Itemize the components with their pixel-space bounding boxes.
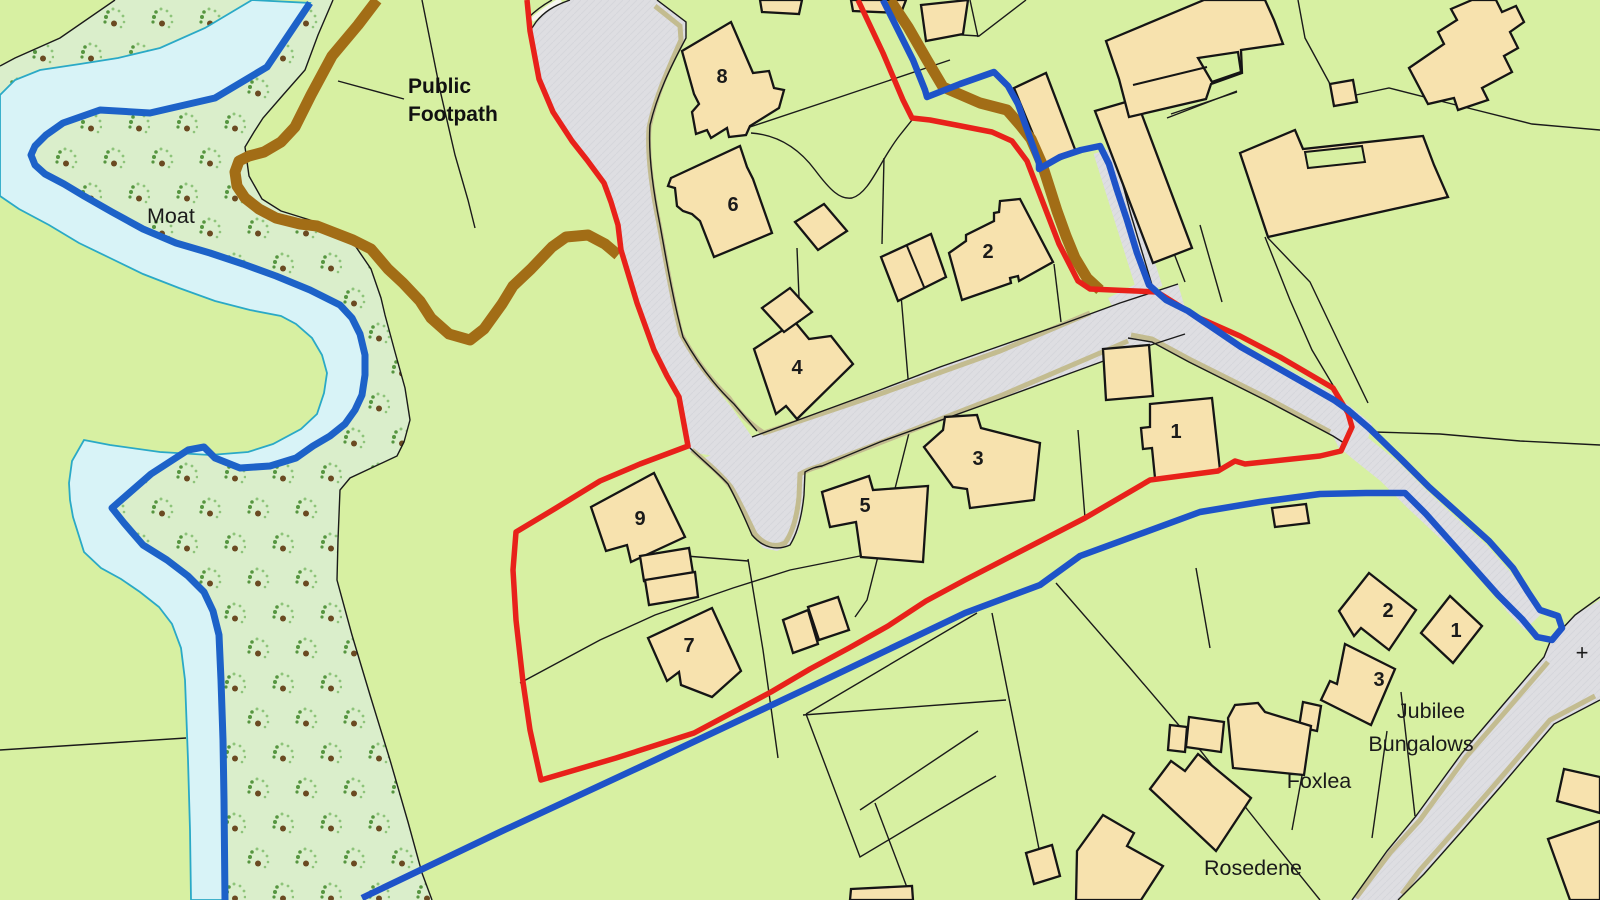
svg-text:Foxlea: Foxlea <box>1287 769 1352 793</box>
svg-text:Public: Public <box>408 75 471 98</box>
svg-text:4: 4 <box>791 357 803 379</box>
svg-text:1: 1 <box>1450 620 1461 642</box>
svg-text:7: 7 <box>683 635 694 657</box>
svg-text:3: 3 <box>972 448 983 470</box>
svg-text:2: 2 <box>1382 600 1393 622</box>
svg-text:1: 1 <box>1170 421 1181 443</box>
svg-text:+: + <box>1576 640 1589 665</box>
svg-text:3: 3 <box>1373 669 1384 691</box>
svg-text:8: 8 <box>716 66 727 88</box>
svg-text:Bungalows: Bungalows <box>1368 732 1473 756</box>
svg-text:Rosedene: Rosedene <box>1204 856 1302 880</box>
svg-text:5: 5 <box>859 495 870 517</box>
svg-text:6: 6 <box>727 194 738 216</box>
svg-text:Footpath: Footpath <box>408 103 498 126</box>
svg-text:2: 2 <box>982 241 993 263</box>
svg-text:Jubilee: Jubilee <box>1397 699 1465 723</box>
svg-text:9: 9 <box>634 508 645 530</box>
svg-text:Moat: Moat <box>147 204 195 228</box>
